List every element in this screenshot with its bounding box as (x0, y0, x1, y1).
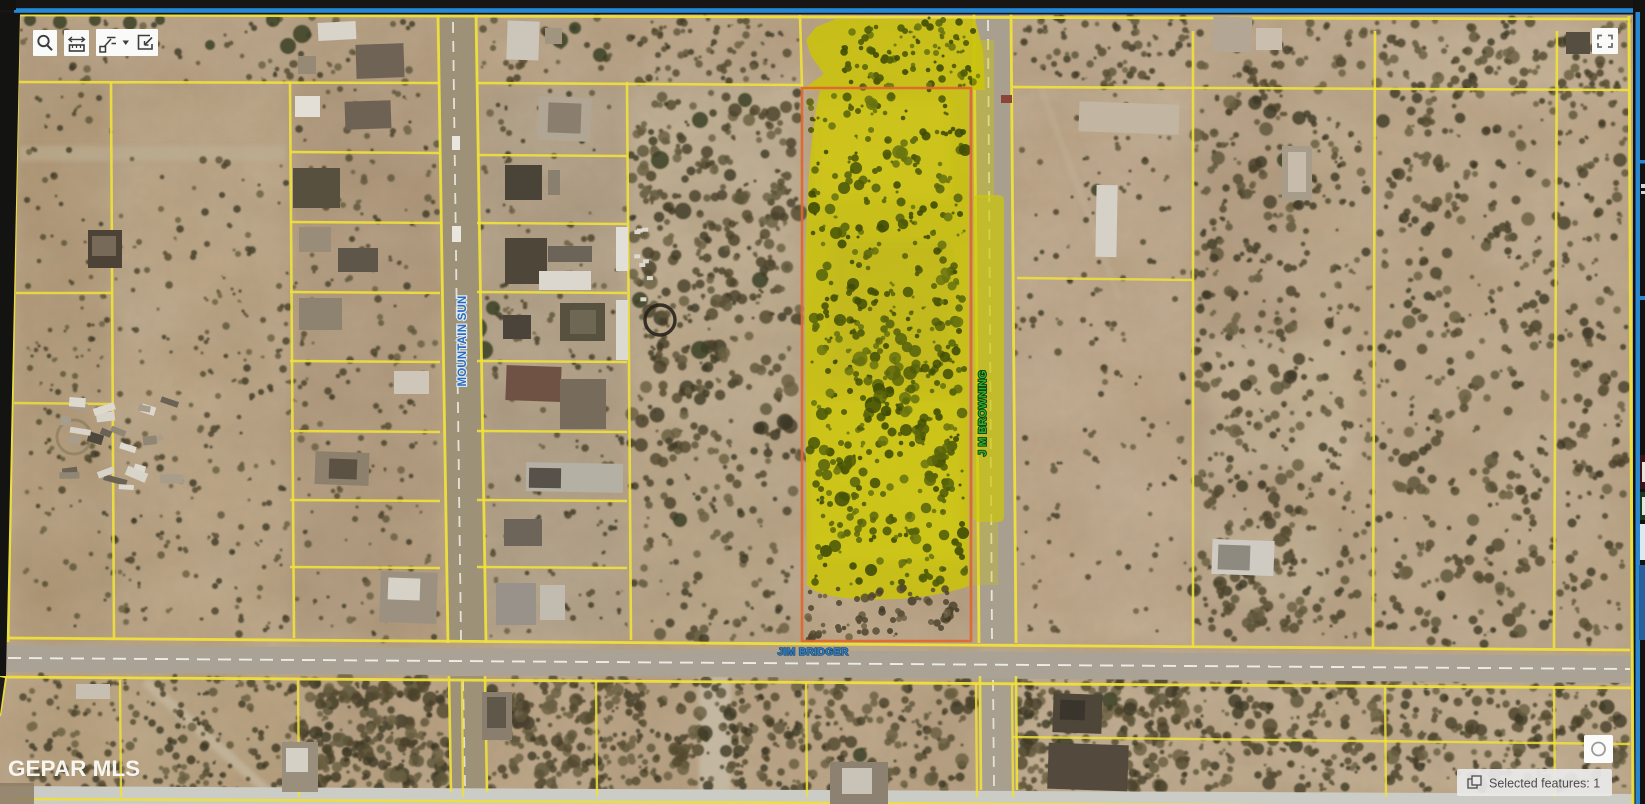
svg-text:J M BROWNING: J M BROWNING (977, 370, 989, 456)
svg-text:Selected features: 1: Selected features: 1 (1489, 777, 1600, 791)
svg-text:JIM BRIDGER: JIM BRIDGER (777, 646, 848, 658)
svg-text:GEPAR MLS: GEPAR MLS (8, 756, 140, 781)
svg-text:MOUNTAIN SUN: MOUNTAIN SUN (457, 296, 469, 387)
